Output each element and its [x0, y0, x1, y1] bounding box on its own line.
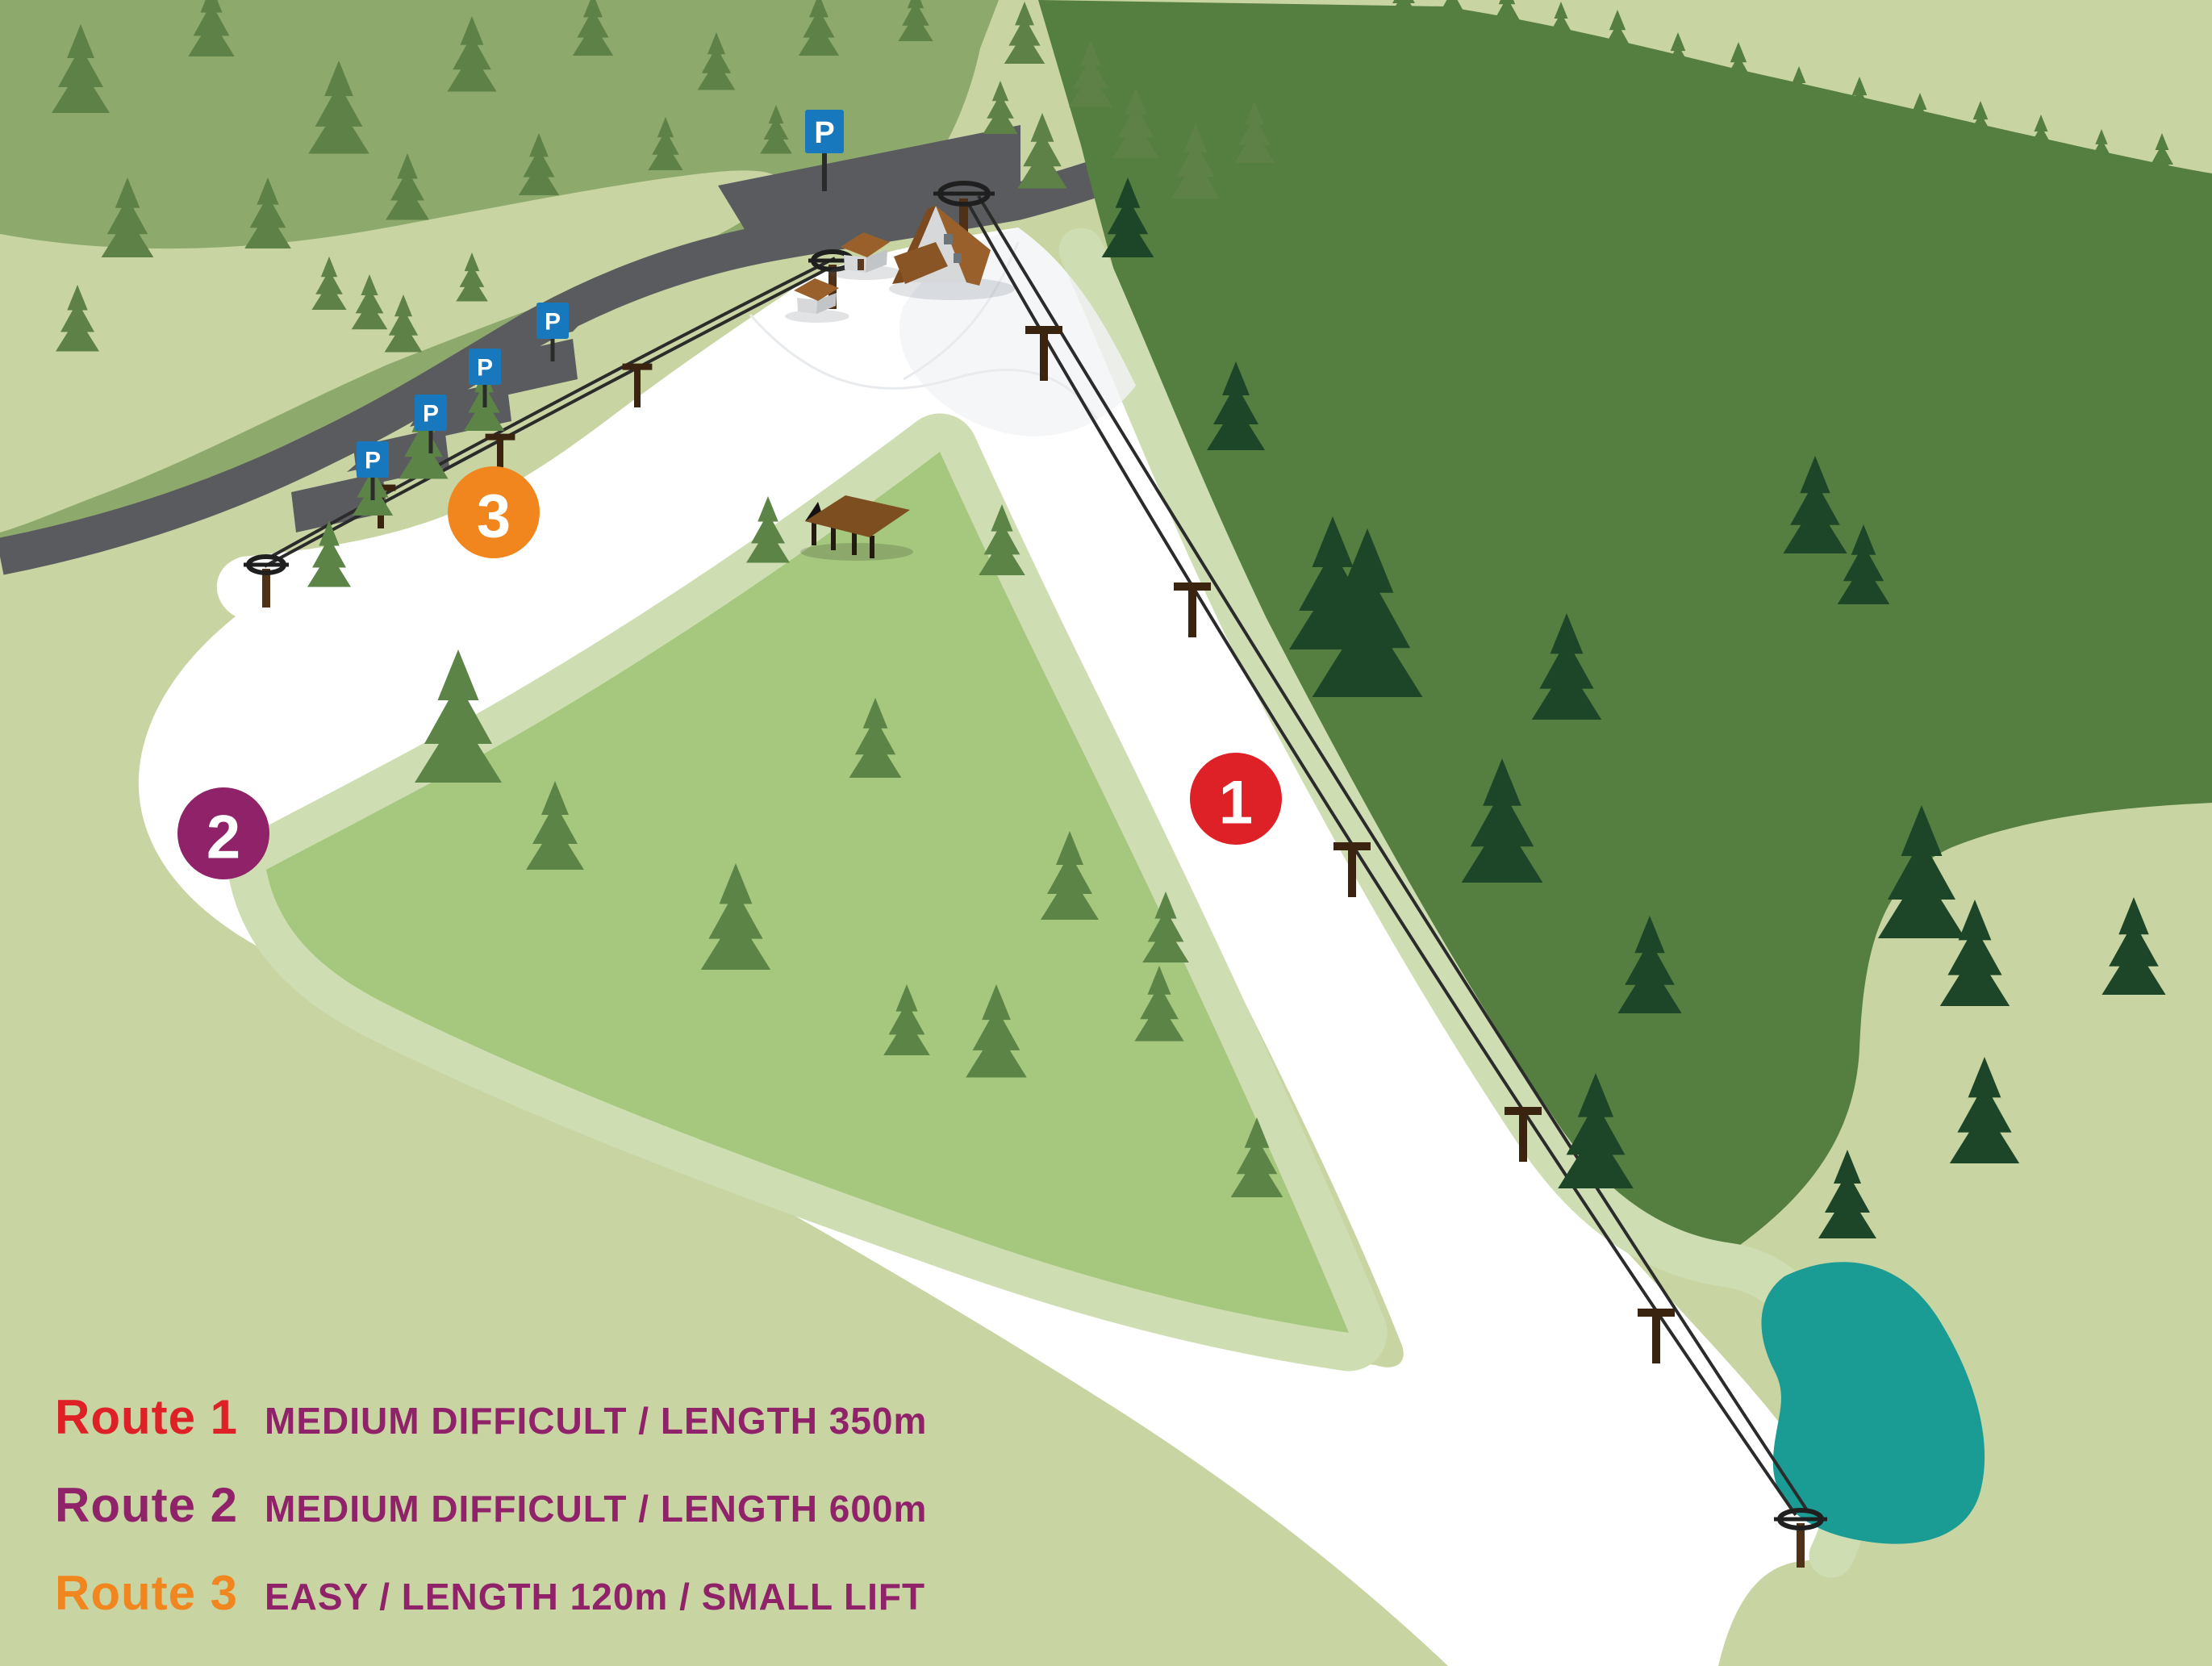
parking-sign-letter: P	[814, 116, 834, 150]
house-door	[858, 259, 864, 270]
hut-wall	[797, 298, 817, 314]
parking-sign-letter: P	[477, 355, 493, 382]
parking-sign-letter: P	[365, 448, 381, 474]
legend-route2-details: MEDIUM DIFFICULT / LENGTH 600m	[265, 1487, 927, 1530]
legend-route3-details: EASY / LENGTH 120m / SMALL LIFT	[265, 1575, 925, 1618]
route-marker-2: 2	[177, 787, 269, 879]
parking-sign-letter: P	[545, 309, 561, 336]
ski-trail-map: P P P P P 1 2 3	[0, 0, 2212, 1666]
shelter-post	[870, 536, 874, 558]
legend-route2-name: Route 2	[55, 1477, 265, 1533]
chalet-window	[954, 253, 962, 263]
legend-row-route1: Route 1 MEDIUM DIFFICULT / LENGTH 350m	[55, 1389, 927, 1445]
parking-sign-letter: P	[423, 401, 439, 428]
legend-row-route3: Route 3 EASY / LENGTH 120m / SMALL LIFT	[55, 1565, 927, 1621]
legend: Route 1 MEDIUM DIFFICULT / LENGTH 350m R…	[55, 1389, 927, 1621]
route-marker-1: 1	[1190, 753, 1282, 845]
legend-route1-details: MEDIUM DIFFICULT / LENGTH 350m	[265, 1399, 927, 1443]
chalet-window	[944, 234, 953, 244]
shelter-post	[831, 528, 836, 550]
route-marker-number: 2	[207, 804, 240, 872]
route-marker-3: 3	[448, 466, 540, 558]
legend-route1-name: Route 1	[55, 1389, 265, 1445]
shelter-post	[812, 523, 816, 545]
shelter-post	[852, 532, 857, 555]
route-marker-number: 1	[1219, 769, 1253, 837]
legend-route3-name: Route 3	[55, 1565, 265, 1621]
route-marker-number: 3	[477, 482, 511, 551]
legend-row-route2: Route 2 MEDIUM DIFFICULT / LENGTH 600m	[55, 1477, 927, 1533]
